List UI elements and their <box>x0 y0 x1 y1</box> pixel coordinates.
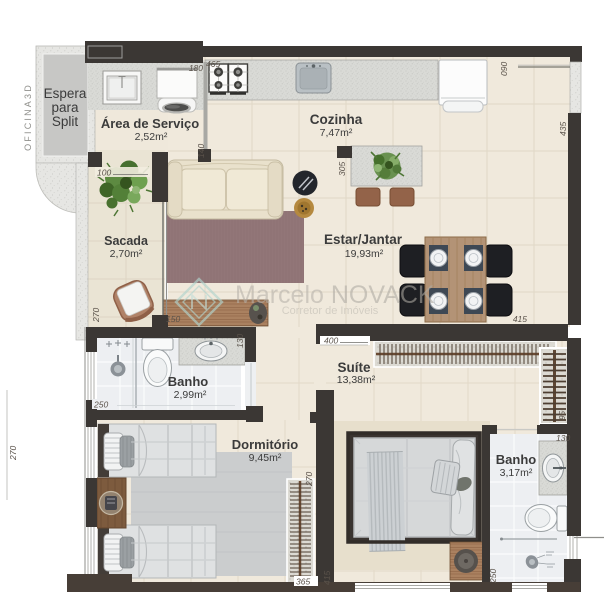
svg-text:Dormitório: Dormitório <box>232 437 299 452</box>
svg-text:Cozinha: Cozinha <box>310 112 363 127</box>
svg-text:3,17m²: 3,17m² <box>500 467 533 479</box>
svg-text:130: 130 <box>235 334 245 348</box>
svg-text:Estar/Jantar: Estar/Jantar <box>324 232 403 247</box>
svg-text:415: 415 <box>322 571 332 585</box>
svg-text:250: 250 <box>488 569 498 584</box>
svg-text:140: 140 <box>196 144 206 158</box>
svg-text:090: 090 <box>499 62 509 76</box>
svg-text:13,38m²: 13,38m² <box>337 374 376 386</box>
svg-text:Banho: Banho <box>496 452 537 467</box>
svg-text:Sacada: Sacada <box>104 234 149 248</box>
svg-text:19,93m²: 19,93m² <box>345 248 384 260</box>
svg-text:130: 130 <box>556 433 570 443</box>
svg-text:2,70m²: 2,70m² <box>110 248 143 260</box>
svg-text:95: 95 <box>558 411 567 420</box>
svg-text:400: 400 <box>324 336 338 346</box>
svg-text:305: 305 <box>337 162 347 176</box>
svg-text:270: 270 <box>8 446 18 461</box>
svg-text:465: 465 <box>206 59 220 69</box>
svg-text:415: 415 <box>513 314 527 324</box>
svg-text:180: 180 <box>189 63 203 73</box>
svg-text:365: 365 <box>296 577 310 587</box>
svg-text:100: 100 <box>97 168 111 178</box>
svg-text:Corretor de Imóveis: Corretor de Imóveis <box>282 305 379 317</box>
svg-text:para: para <box>51 100 79 115</box>
svg-text:435: 435 <box>558 122 568 136</box>
svg-text:Espera: Espera <box>44 86 87 101</box>
svg-text:2,52m²: 2,52m² <box>135 131 168 143</box>
svg-text:9,45m²: 9,45m² <box>249 452 282 464</box>
svg-text:7,47m²: 7,47m² <box>320 127 353 139</box>
svg-text:Área de Serviço: Área de Serviço <box>101 116 199 131</box>
svg-text:OFICINA3D: OFICINA3D <box>23 83 33 151</box>
svg-text:2,99m²: 2,99m² <box>174 389 207 401</box>
svg-text:Split: Split <box>52 114 79 129</box>
svg-text:Banho: Banho <box>168 374 209 389</box>
svg-text:270: 270 <box>304 472 314 487</box>
svg-text:150: 150 <box>166 314 180 324</box>
svg-text:270: 270 <box>91 308 101 323</box>
svg-text:250: 250 <box>93 400 108 410</box>
svg-text:Suíte: Suíte <box>337 360 370 375</box>
